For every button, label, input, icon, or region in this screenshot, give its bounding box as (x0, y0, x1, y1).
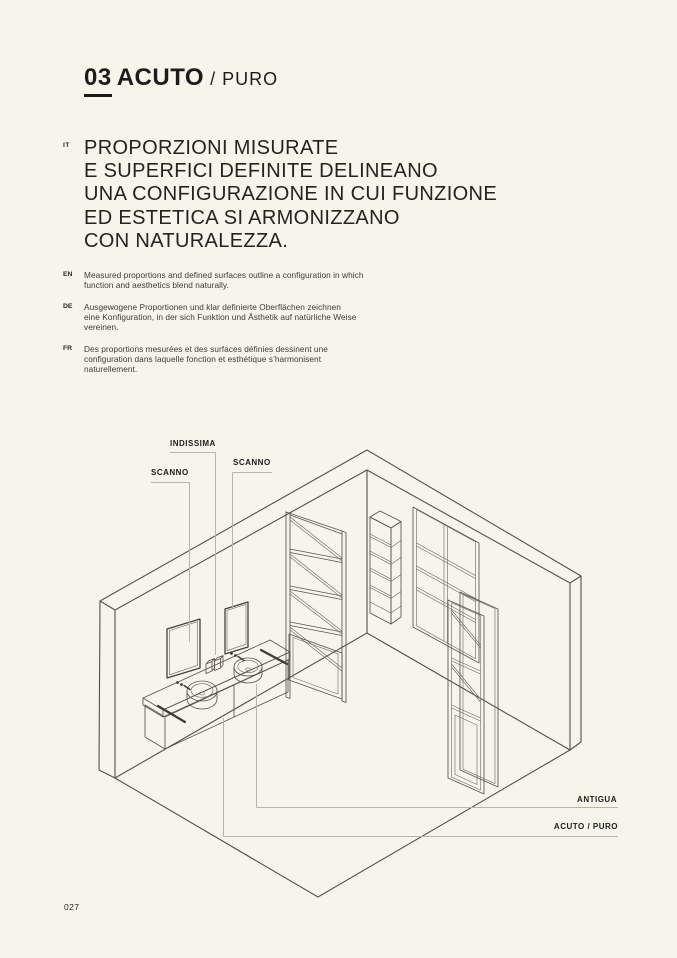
mirror-left (167, 619, 200, 678)
room-outline (99, 450, 581, 897)
wall-shelf-unit (370, 511, 401, 624)
page-number: 027 (64, 902, 79, 912)
faucet-right (230, 652, 244, 660)
towel-rail-right (261, 650, 287, 664)
catalog-page: 03ACUTO/ PURO IT PROPORZIONI MISURATE E … (0, 0, 677, 958)
glazed-wall-panel (413, 507, 479, 663)
basin-right (234, 658, 262, 683)
diagram-label-antigua: ANTIGUA (577, 795, 617, 804)
faucet-left (176, 681, 190, 689)
accessory-canisters (206, 656, 223, 674)
mirror-right (225, 602, 248, 654)
leader-lines (151, 453, 618, 837)
diagram-label-indissima: INDISSIMA (170, 439, 216, 448)
pivot-door-panel (448, 592, 498, 794)
diagram-label-scanno-right: SCANNO (233, 458, 271, 467)
diagram-label-scanno-left: SCANNO (151, 468, 189, 477)
isometric-room-drawing (0, 0, 677, 958)
diagram-label-acuto-puro: ACUTO / PURO (554, 822, 618, 831)
